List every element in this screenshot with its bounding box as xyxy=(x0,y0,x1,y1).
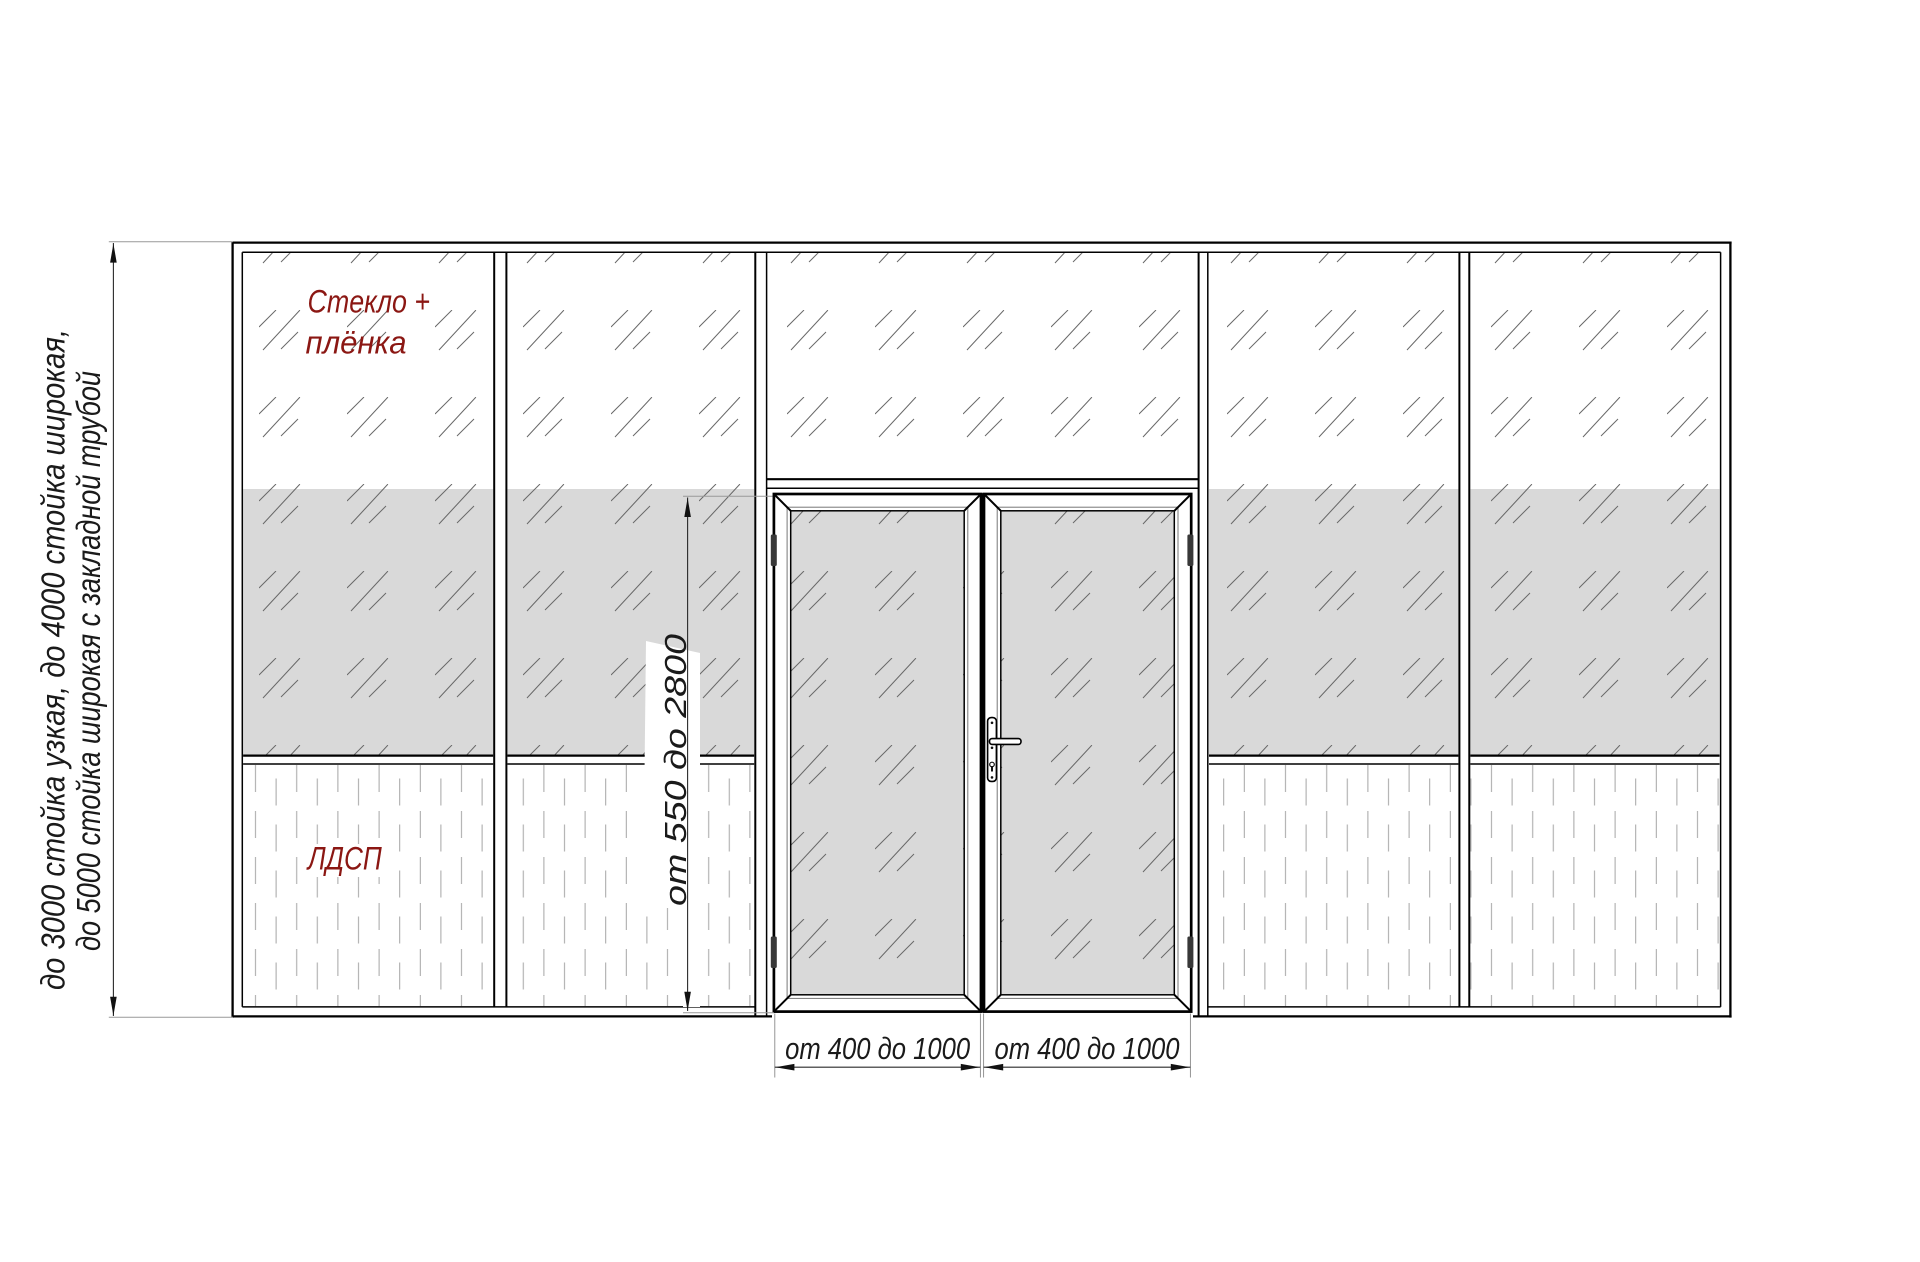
svg-text:плёнка: плёнка xyxy=(306,324,407,360)
svg-text:до 3000 стойка узкая, до 4000: до 3000 стойка узкая, до 4000 стойка шир… xyxy=(35,329,72,990)
svg-text:от 400 до 1000: от 400 до 1000 xyxy=(995,1031,1180,1066)
svg-text:ЛДСП: ЛДСП xyxy=(306,841,382,877)
svg-text:от 550 до 2800: от 550 до 2800 xyxy=(658,634,693,906)
svg-text:от 400 до 1000: от 400 до 1000 xyxy=(785,1031,970,1066)
svg-text:Стекло +: Стекло + xyxy=(308,283,431,319)
svg-text:до 5000 стойка широкая с закла: до 5000 стойка широкая с закладной трубо… xyxy=(70,371,107,951)
